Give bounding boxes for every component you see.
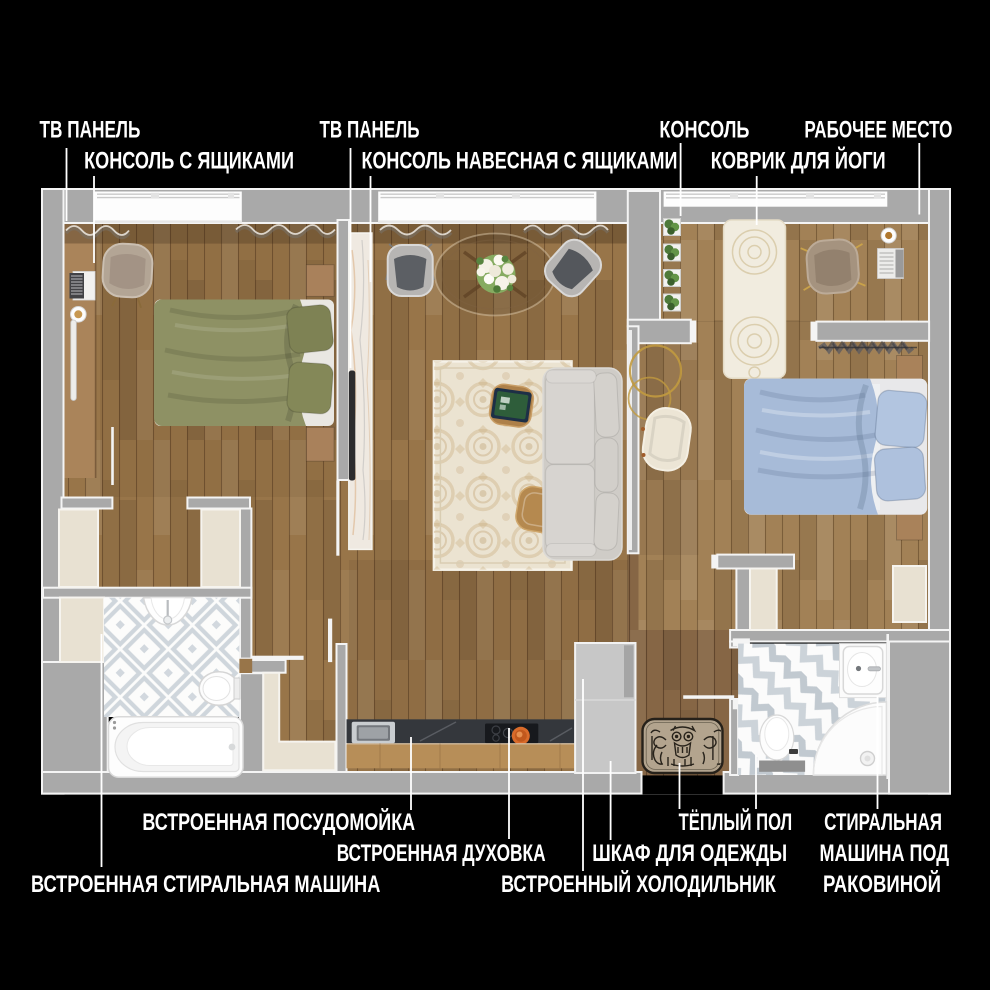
svg-text:СТИРАЛЬНАЯ: СТИРАЛЬНАЯ [824,809,942,836]
svg-text:РАБОЧЕЕ МЕСТО: РАБОЧЕЕ МЕСТО [804,117,952,144]
svg-text:МАШИНА ПОД: МАШИНА ПОД [820,839,950,866]
svg-text:ВСТРОЕННЫЙ ХОЛОДИЛЬНИК: ВСТРОЕННЫЙ ХОЛОДИЛЬНИК [501,869,777,897]
svg-text:КОНСОЛЬ: КОНСОЛЬ [659,116,749,143]
svg-text:КОНСОЛЬ С ЯЩИКАМИ: КОНСОЛЬ С ЯЩИКАМИ [84,147,294,174]
svg-text:ВСТРОЕННАЯ ДУХОВКА: ВСТРОЕННАЯ ДУХОВКА [337,840,546,867]
svg-text:ШКАФ ДЛЯ ОДЕЖДЫ: ШКАФ ДЛЯ ОДЕЖДЫ [592,838,787,866]
svg-text:ВСТРОЕННАЯ СТИРАЛЬНАЯ МАШИНА: ВСТРОЕННАЯ СТИРАЛЬНАЯ МАШИНА [31,869,381,897]
svg-text:ТВ ПАНЕЛЬ: ТВ ПАНЕЛЬ [320,117,420,144]
svg-text:ВСТРОЕННАЯ ПОСУДОМОЙКА: ВСТРОЕННАЯ ПОСУДОМОЙКА [142,807,415,836]
svg-text:ТЁПЛЫЙ ПОЛ: ТЁПЛЫЙ ПОЛ [679,808,793,836]
svg-text:КОВРИК ДЛЯ ЙОГИ: КОВРИК ДЛЯ ЙОГИ [711,146,886,174]
svg-text:ТВ ПАНЕЛЬ: ТВ ПАНЕЛЬ [40,117,141,144]
svg-text:КОНСОЛЬ НАВЕСНАЯ С ЯЩИКАМИ: КОНСОЛЬ НАВЕСНАЯ С ЯЩИКАМИ [362,147,678,174]
svg-text:РАКОВИНОЙ: РАКОВИНОЙ [823,869,941,897]
